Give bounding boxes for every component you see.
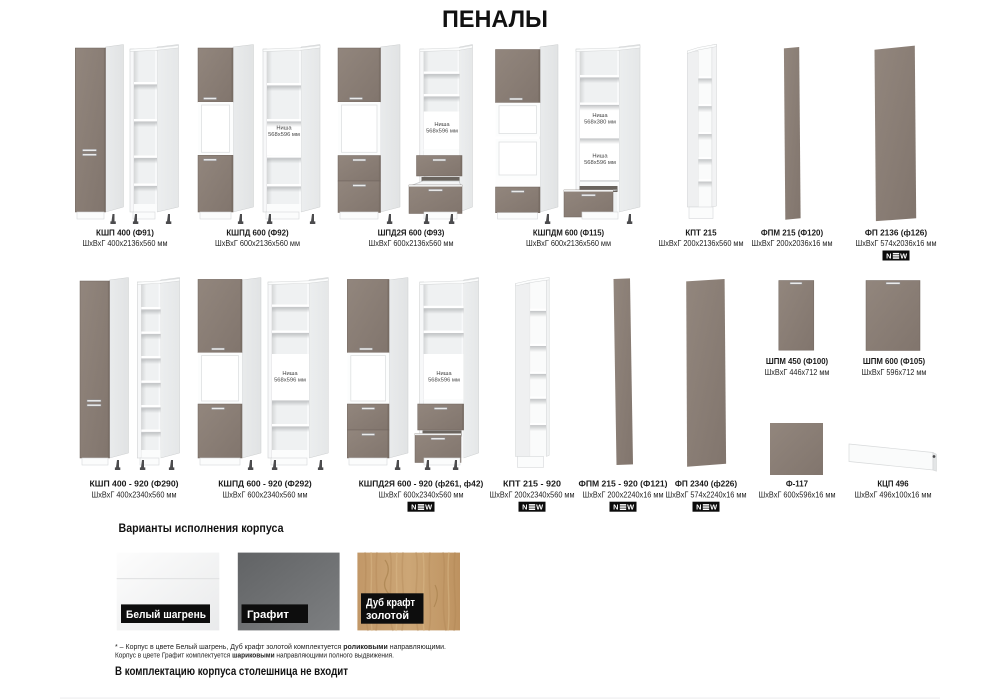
svg-text:Графит: Графит (247, 609, 289, 621)
svg-text:КПТ 215: КПТ 215 (685, 228, 717, 237)
svg-text:КЦП 496: КЦП 496 (877, 480, 909, 489)
svg-text:Ниша: Ниша (434, 122, 450, 128)
svg-text:ШхВхГ 446х712 мм: ШхВхГ 446х712 мм (765, 368, 830, 377)
svg-text:ШПМ 600 (Ф105): ШПМ 600 (Ф105) (863, 357, 926, 366)
svg-text:КПТ 215 - 920: КПТ 215 - 920 (503, 480, 561, 489)
svg-text:568х596 мм: 568х596 мм (426, 128, 458, 134)
svg-text:КШПДМ 600 (Ф115): КШПДМ 600 (Ф115) (533, 228, 604, 237)
svg-text:W: W (425, 503, 432, 512)
svg-text:Ниша: Ниша (592, 113, 608, 119)
svg-text:ФПМ 215 - 920 (Ф121): ФПМ 215 - 920 (Ф121) (579, 480, 668, 489)
svg-text:золотой: золотой (366, 610, 409, 622)
svg-text:ШхВхГ 600х2340х560 мм: ШхВхГ 600х2340х560 мм (223, 490, 308, 499)
svg-text:W: W (627, 503, 634, 512)
svg-text:W: W (900, 251, 907, 260)
svg-text:568х596 мм: 568х596 мм (584, 160, 616, 166)
svg-text:568х596 мм: 568х596 мм (268, 132, 300, 138)
svg-text:W: W (710, 503, 717, 512)
svg-text:КШП 400 (Ф91): КШП 400 (Ф91) (96, 228, 154, 237)
svg-text:Белый шагрень: Белый шагрень (126, 609, 206, 621)
svg-text:ШхВхГ 600х2136х560 мм: ШхВхГ 600х2136х560 мм (215, 239, 300, 248)
svg-text:568х596 мм: 568х596 мм (274, 377, 306, 383)
svg-text:ШхВхГ 600х2136х560 мм: ШхВхГ 600х2136х560 мм (369, 239, 454, 248)
svg-text:ШхВхГ 600х2340х560 мм: ШхВхГ 600х2340х560 мм (379, 490, 464, 499)
svg-text:Ф-117: Ф-117 (786, 480, 809, 489)
svg-text:ШхВхГ 574х2240х16 мм: ШхВхГ 574х2240х16 мм (666, 490, 747, 499)
svg-text:Ниша: Ниша (436, 371, 452, 377)
svg-text:ШхВхГ 496х100х16 мм: ШхВхГ 496х100х16 мм (855, 490, 932, 499)
svg-text:ШхВхГ 600х2136х560 мм: ШхВхГ 600х2136х560 мм (526, 239, 611, 248)
svg-text:ШхВхГ 574х2036х16 мм: ШхВхГ 574х2036х16 мм (856, 239, 937, 248)
svg-text:N: N (411, 503, 416, 512)
svg-text:N: N (613, 503, 618, 512)
svg-text:ШхВхГ 600х596х16 мм: ШхВхГ 600х596х16 мм (759, 490, 836, 499)
svg-text:Варианты исполнения корпуса: Варианты исполнения корпуса (119, 521, 284, 535)
svg-text:N: N (886, 251, 891, 260)
svg-text:ШхВхГ 596х712 мм: ШхВхГ 596х712 мм (862, 368, 927, 377)
svg-text:Ниша: Ниша (276, 126, 292, 132)
svg-text:ШПД2Я 600 (Ф93): ШПД2Я 600 (Ф93) (378, 228, 445, 237)
svg-text:568х596 мм: 568х596 мм (428, 377, 460, 383)
svg-text:ФП 2136 (ф126): ФП 2136 (ф126) (865, 228, 928, 237)
svg-text:ФП 2340 (ф226): ФП 2340 (ф226) (675, 480, 738, 489)
svg-text:ШхВхГ 200х2340х560 мм: ШхВхГ 200х2340х560 мм (490, 490, 575, 499)
svg-text:568х380 мм: 568х380 мм (584, 119, 616, 125)
svg-text:ШхВхГ 200х2240х16 мм: ШхВхГ 200х2240х16 мм (583, 490, 664, 499)
svg-text:Ниша: Ниша (282, 371, 298, 377)
svg-text:ШхВхГ 200х2036х16 мм: ШхВхГ 200х2036х16 мм (752, 239, 833, 248)
svg-text:N: N (696, 503, 701, 512)
svg-text:КШП 400 - 920 (Ф290): КШП 400 - 920 (Ф290) (90, 480, 179, 489)
svg-text:ШПМ 450 (Ф100): ШПМ 450 (Ф100) (766, 357, 829, 366)
svg-text:КШПД 600 - 920 (Ф292): КШПД 600 - 920 (Ф292) (218, 480, 312, 489)
svg-text:Ниша: Ниша (592, 154, 608, 160)
svg-text:КШПД 600 (Ф92): КШПД 600 (Ф92) (226, 228, 289, 237)
svg-text:Корпус в цвете Графит комплект: Корпус в цвете Графит комплектуется шари… (115, 651, 394, 660)
svg-text:ШхВхГ 200х2136х560 мм: ШхВхГ 200х2136х560 мм (659, 239, 744, 248)
svg-text:В комплектацию корпуса столешн: В комплектацию корпуса столешница не вхо… (115, 664, 348, 678)
svg-text:Дуб крафт: Дуб крафт (366, 597, 415, 609)
svg-text:ФПМ 215 (Ф120): ФПМ 215 (Ф120) (761, 228, 824, 237)
svg-text:ШхВхГ 400х2136х560 мм: ШхВхГ 400х2136х560 мм (83, 239, 168, 248)
svg-text:КШПД2Я 600 - 920 (ф261, ф42): КШПД2Я 600 - 920 (ф261, ф42) (359, 480, 484, 489)
svg-text:W: W (536, 503, 543, 512)
svg-text:N: N (522, 503, 527, 512)
svg-text:ПЕНАЛЫ: ПЕНАЛЫ (442, 6, 548, 33)
svg-text:ШхВхГ 400х2340х560 мм: ШхВхГ 400х2340х560 мм (92, 490, 177, 499)
